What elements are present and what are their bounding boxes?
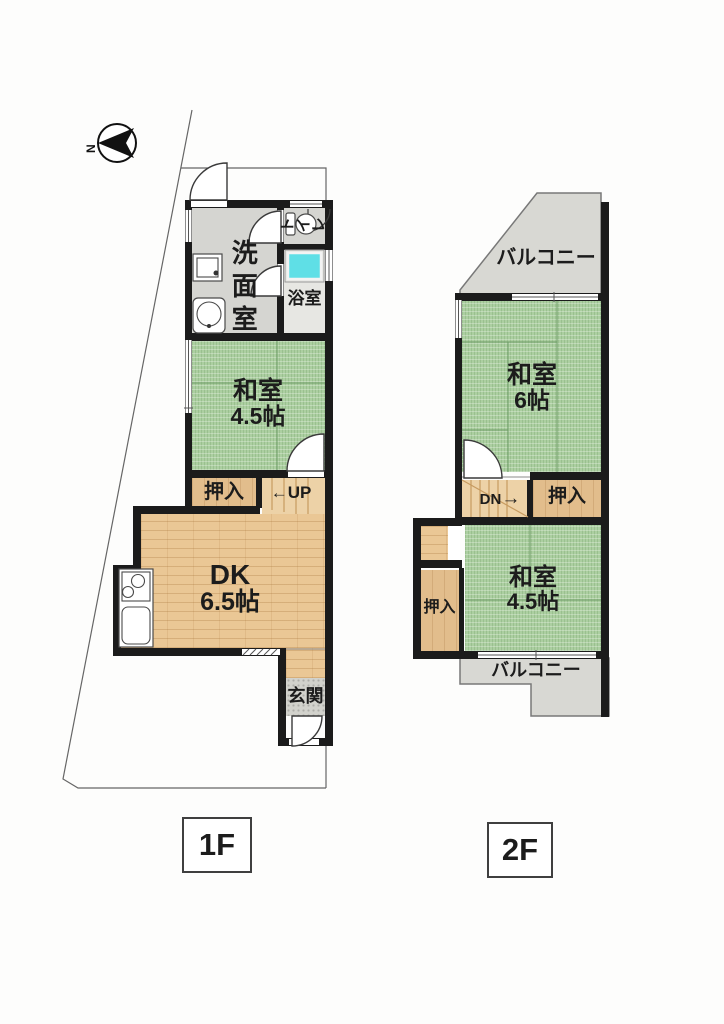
bathtub <box>285 250 324 282</box>
up-arrow-icon: ← <box>271 483 288 502</box>
tatami-lines <box>192 301 601 600</box>
floor-label-2f: 2F <box>487 822 553 878</box>
washing-machine <box>193 254 222 281</box>
label-tatami-45-1f: 和室 4.5帖 <box>198 378 318 428</box>
floorplan-graphics <box>0 0 724 1024</box>
door-arc-tatami-6-2f <box>464 440 502 478</box>
label-stairs-dn: DN→ <box>474 489 526 509</box>
door-arc-tatami-1f <box>287 434 324 471</box>
label-entrance: 玄関 <box>283 687 328 706</box>
floor-label-1f: 1F <box>182 817 252 873</box>
label-closet-1f: 押入 <box>192 482 256 503</box>
label-toilet: ト イ レ <box>283 210 325 240</box>
label-bathroom: 浴室 <box>283 290 326 308</box>
kitchen-counter <box>119 569 153 647</box>
label-stairs-up: ←UP <box>258 484 324 502</box>
label-closet-2f-right: 押入 <box>533 487 601 507</box>
label-washroom: 洗面室 <box>229 237 256 339</box>
label-closet-2f-left: 押入 <box>420 600 459 617</box>
door-arc-washroom-exterior <box>190 163 227 200</box>
label-tatami-45-2f: 和室 4.5帖 <box>473 565 593 613</box>
label-balcony-top: バルコニー <box>490 248 602 269</box>
wash-basin <box>193 298 225 333</box>
label-balcony-bottom: バルコニー <box>486 661 586 680</box>
floorplan-page: { "compass": { "north_label": "N" }, "fl… <box>0 0 724 1024</box>
label-tatami-6-2f: 和室 6帖 <box>477 362 587 412</box>
down-arrow-icon: → <box>501 488 520 509</box>
label-dk: DK 6.5帖 <box>155 560 305 616</box>
walls-2f <box>413 202 609 717</box>
